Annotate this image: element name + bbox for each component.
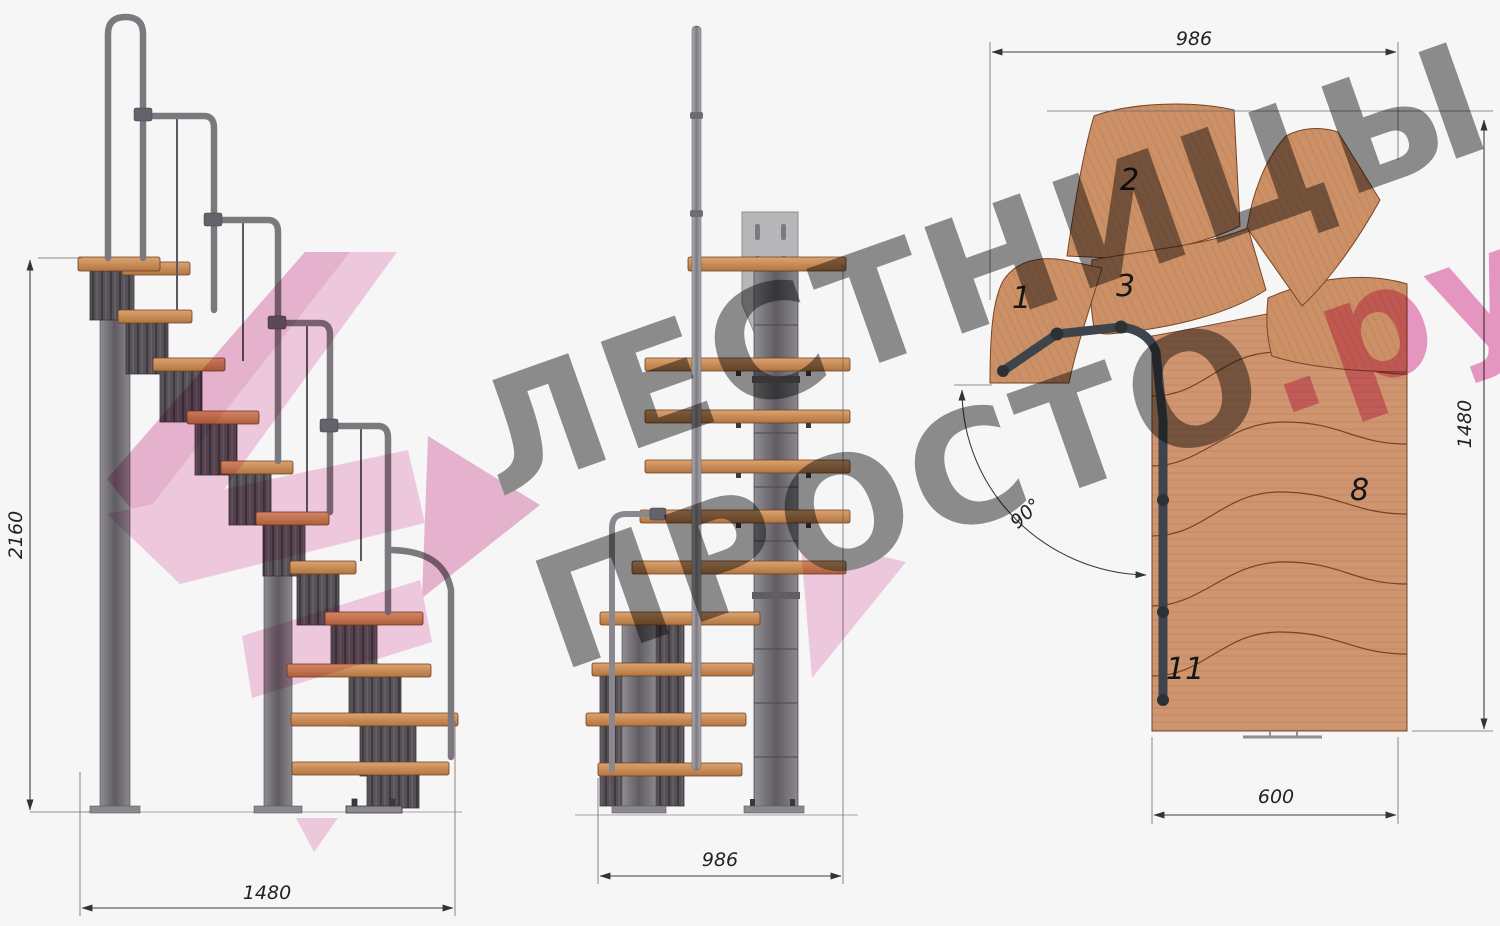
step-label-8: 8 — [1350, 473, 1369, 508]
dim-side-length-label: 1480 — [243, 882, 291, 904]
dim-side-height-label: 2160 — [5, 511, 27, 559]
drawing-svg: 1 2 3 8 11 — [0, 0, 1500, 926]
floor-bracket — [1243, 731, 1322, 737]
dim-front-width-label: 986 — [702, 849, 738, 871]
dim-plan-width-label: 986 — [1176, 28, 1212, 50]
step-label-11: 11 — [1166, 652, 1204, 687]
dim-plan-exit-label: 600 — [1258, 786, 1294, 808]
staircase-technical-drawing: 1 2 3 8 11 — [0, 0, 1500, 926]
dim-plan-depth-label: 1480 — [1454, 400, 1476, 448]
